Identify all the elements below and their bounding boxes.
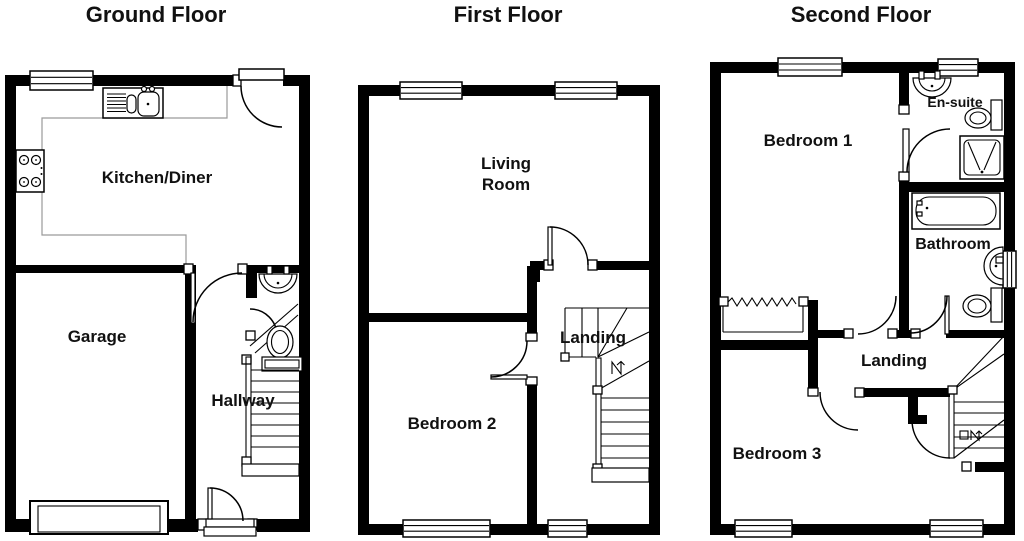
living-room-window-left [400,82,462,99]
second-landing-label: Landing [861,351,927,370]
hob-icon [16,150,44,192]
hallway-label: Hallway [211,391,275,410]
kitchen-sink [103,87,163,119]
kitchen-window [30,71,93,90]
bedroom2-window [403,520,490,537]
bathroom-door [910,296,949,338]
understairs-door [912,420,950,458]
bedroom2-label: Bedroom 2 [408,414,497,433]
bathroom-label: Bathroom [915,236,991,253]
ground-floor-plan: Kitchen/Diner Garage Hallway [5,69,310,536]
wc-toilet-icon [262,326,302,371]
ensuite-label: En-suite [927,94,982,110]
bedroom3-door [808,388,864,430]
bedroom1-label: Bedroom 1 [764,131,853,150]
garage-door [30,501,168,534]
living-room-label-line1: Living [481,154,531,173]
first-floor-plan: Living Room Bedroom 2 Landing [358,82,660,537]
stairs-direction-arrow [612,362,625,375]
second-floor-plan: Bedroom 1 En-suite Bathroom Landing Bedr… [710,58,1016,537]
first-landing-window [548,520,587,537]
bedroom3-label: Bedroom 3 [733,444,822,463]
bathroom-window [1003,251,1016,288]
ground-floor-title: Ground Floor [86,2,227,27]
shower-icon [960,136,1004,179]
second-floor-title: Second Floor [791,2,932,27]
kitchen-hallway-door [184,264,247,323]
front-door [198,488,257,536]
first-landing-label: Landing [560,328,626,347]
floorplan-page: Ground Floor First Floor Second Floor [0,0,1024,541]
living-room-door [544,227,597,270]
kitchen-diner-label: Kitchen/Diner [102,168,213,187]
garage-label: Garage [68,327,127,346]
floorplan-drawing: Ground Floor First Floor Second Floor [0,0,1024,541]
bedroom1-window [778,58,842,76]
stairs-newel-post [960,431,968,439]
bedroom3-window-right [930,520,983,537]
wardrobe-zigzag [719,297,808,332]
bath-icon [912,193,1000,229]
ensuite-door [899,105,950,181]
bedroom3-window-left [735,520,792,537]
living-room-label-line2: Room [482,175,530,194]
bedroom2-door [491,333,537,385]
living-room-window-right [555,82,617,99]
ensuite-window [938,59,978,76]
first-floor-title: First Floor [454,2,563,27]
ground-staircase [242,355,299,476]
kitchen-entry-door [239,69,284,127]
bathroom-toilet-icon [963,288,1002,322]
bedroom1-door [844,296,897,338]
